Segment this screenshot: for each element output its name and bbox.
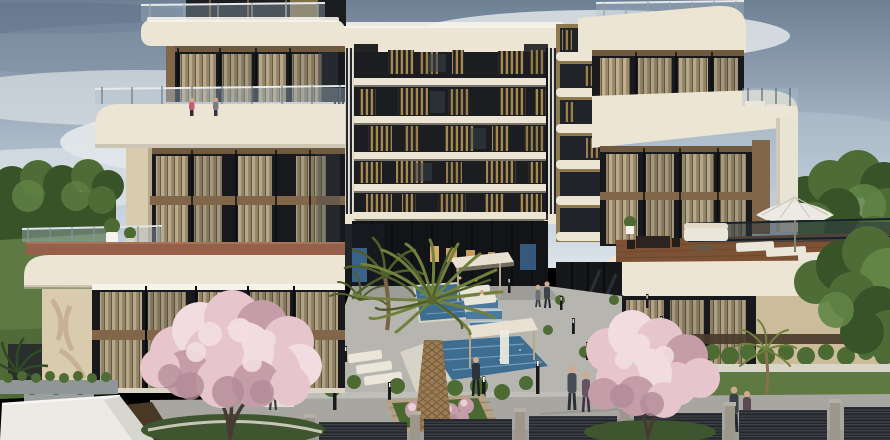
central-tower bbox=[330, 22, 570, 286]
fence-panel bbox=[844, 407, 890, 440]
floor2-wood-band bbox=[600, 192, 752, 200]
person-pergola-seated bbox=[480, 290, 485, 300]
dark-chair bbox=[627, 240, 635, 249]
terrace-plant-pot bbox=[626, 226, 634, 234]
bollard bbox=[560, 296, 563, 310]
terrace-lounger bbox=[766, 104, 786, 111]
coffee-table bbox=[694, 244, 714, 252]
tower-top-lip bbox=[336, 22, 564, 28]
bollard bbox=[572, 318, 575, 334]
sofa bbox=[684, 228, 728, 241]
cabana-curtain bbox=[500, 330, 509, 364]
fence-post bbox=[725, 405, 735, 440]
terrace-lounger bbox=[745, 101, 765, 108]
terrace-railing-glass bbox=[22, 228, 162, 242]
balcony-band bbox=[95, 104, 345, 148]
fascia-band-top bbox=[141, 20, 345, 46]
lower-band bbox=[24, 255, 345, 289]
fence-post bbox=[830, 402, 840, 440]
bollard bbox=[646, 294, 649, 308]
dark-chair bbox=[672, 238, 680, 247]
glass-glint bbox=[316, 154, 340, 250]
topiary-ball bbox=[124, 227, 136, 239]
wing-balcony-band bbox=[556, 160, 606, 169]
render-canvas bbox=[0, 0, 890, 440]
ground-top-frame bbox=[92, 284, 345, 290]
curtain bbox=[600, 58, 630, 98]
terracotta-deck bbox=[26, 242, 345, 255]
curtain bbox=[638, 58, 672, 98]
dark-table bbox=[636, 236, 670, 248]
planter-wall bbox=[0, 380, 118, 394]
fascia-lip bbox=[147, 17, 339, 22]
fence-post bbox=[515, 411, 525, 440]
fence-panel bbox=[319, 422, 407, 440]
architectural-render-image bbox=[0, 0, 890, 440]
bollard bbox=[388, 382, 391, 402]
band-shadow bbox=[95, 144, 345, 148]
bollard bbox=[508, 278, 511, 293]
floor1-header bbox=[592, 50, 744, 56]
floor2-header bbox=[600, 146, 752, 152]
fence-panel bbox=[424, 419, 512, 440]
floorB-header bbox=[150, 148, 345, 154]
floorB-wood-band bbox=[150, 196, 345, 205]
topiary-ball bbox=[104, 218, 120, 234]
fence-panel bbox=[739, 410, 827, 440]
blue-glass-panel bbox=[520, 244, 536, 270]
fence-post bbox=[410, 414, 420, 440]
tower-floors bbox=[354, 50, 546, 221]
